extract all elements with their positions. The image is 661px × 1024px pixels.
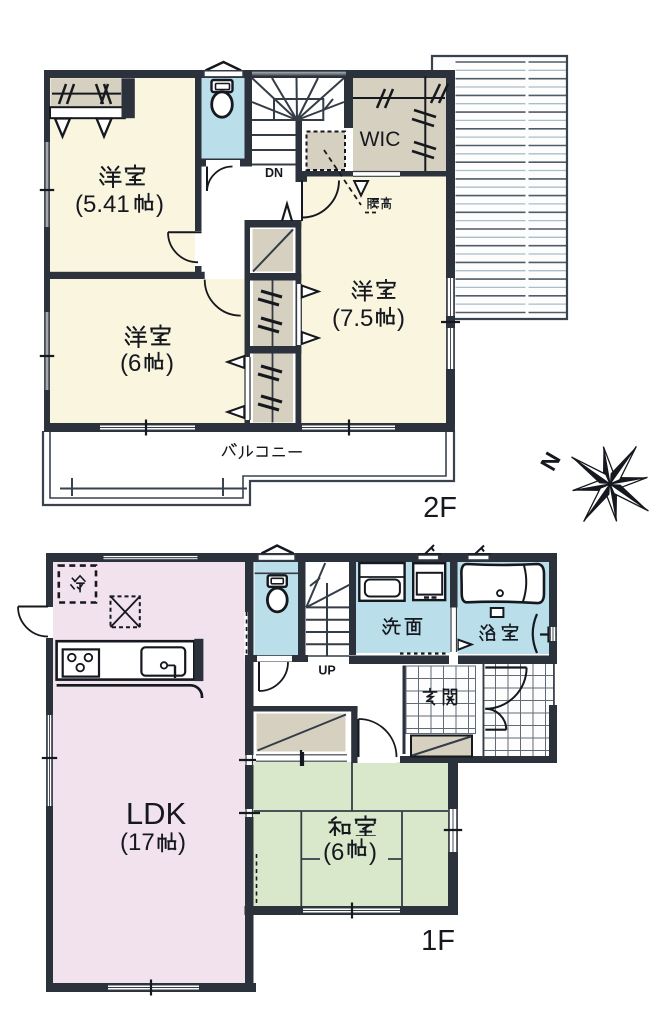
svg-text:(6: (6	[120, 350, 141, 377]
svg-text:(17: (17	[120, 829, 155, 856]
svg-text:DN: DN	[265, 166, 283, 180]
svg-text:): )	[397, 305, 405, 332]
svg-text:LDK: LDK	[126, 796, 187, 831]
svg-text:1F: 1F	[421, 925, 455, 957]
svg-text:): )	[166, 350, 174, 377]
svg-text:): )	[178, 829, 186, 856]
svg-text:(7.5: (7.5	[332, 305, 373, 332]
svg-text:(6: (6	[323, 839, 344, 866]
svg-text:): )	[369, 839, 377, 866]
svg-text:UP: UP	[318, 664, 335, 678]
svg-text:2F: 2F	[423, 492, 457, 524]
svg-text:): )	[156, 191, 164, 218]
svg-text:(5.41: (5.41	[75, 191, 130, 218]
svg-text:WIC: WIC	[360, 128, 401, 151]
